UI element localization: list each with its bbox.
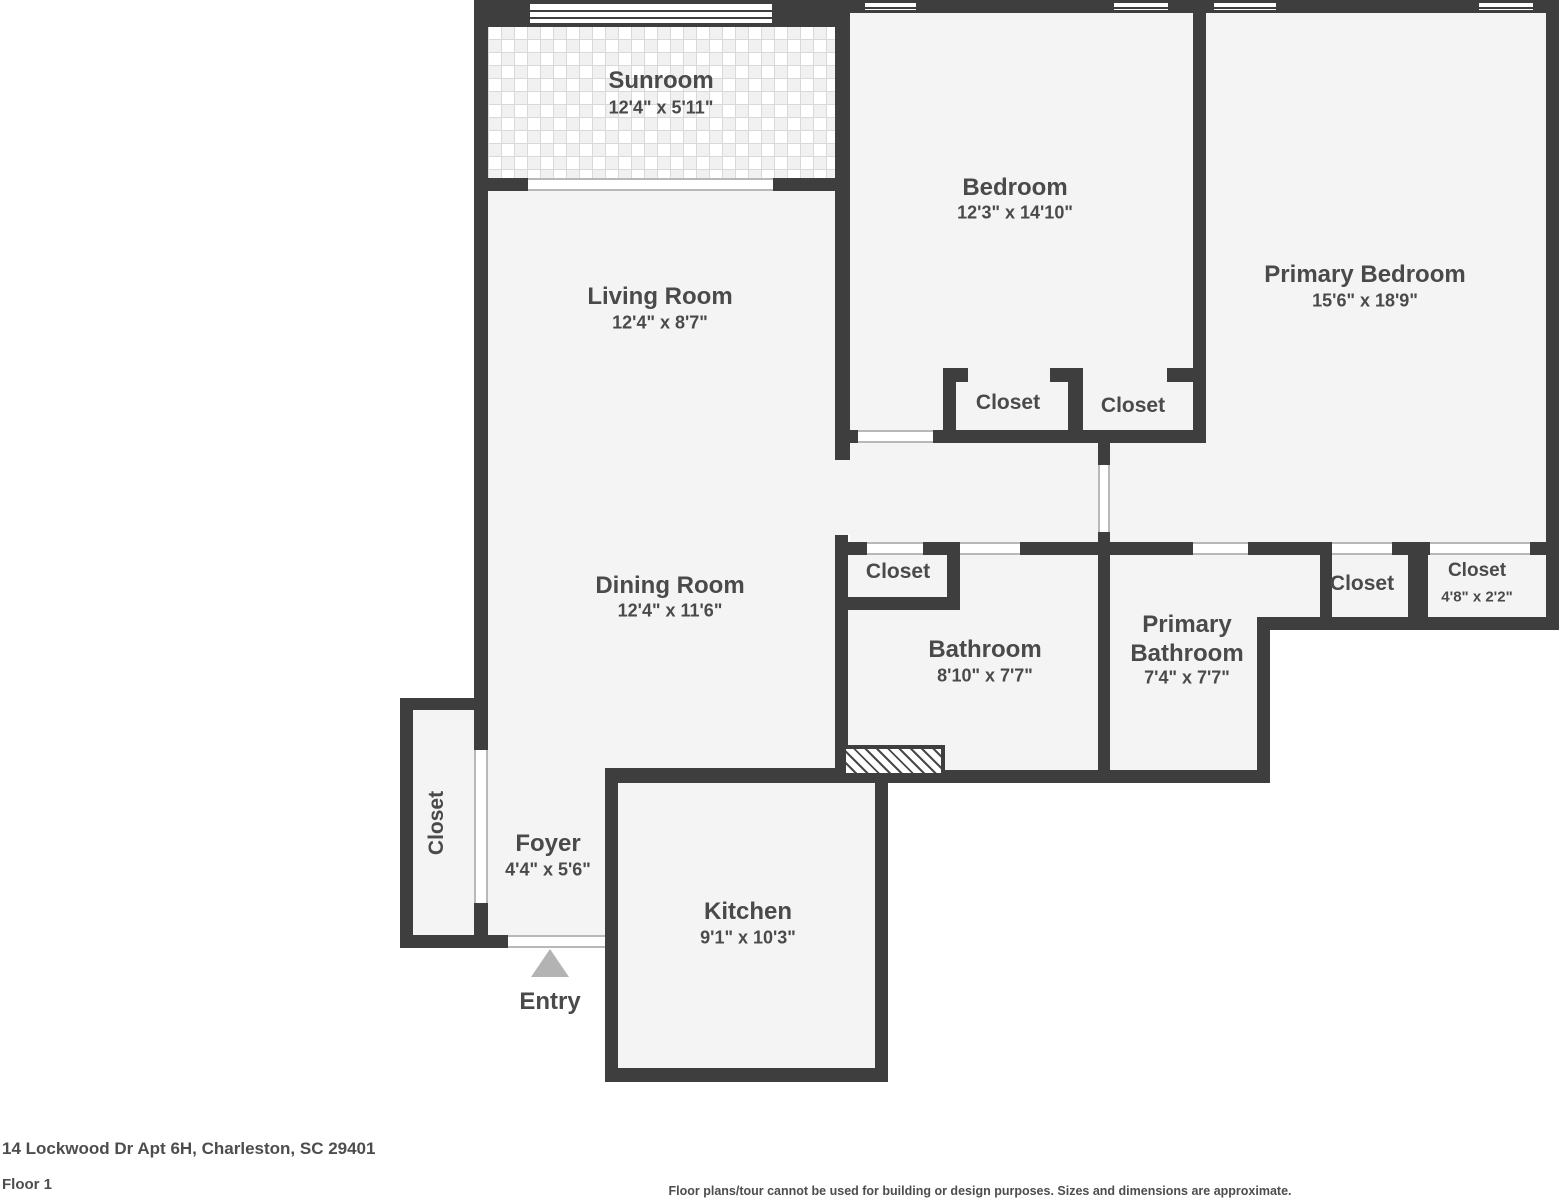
closet-label-bedroom-right: Closet — [1101, 394, 1165, 418]
room-name-bathroom: Bathroom — [928, 636, 1041, 664]
hatched-area — [842, 745, 945, 777]
wall — [400, 698, 413, 948]
closet-label-hall: Closet — [866, 560, 930, 584]
hall-passage-floor — [835, 460, 850, 535]
wall — [835, 597, 960, 610]
window-symbol — [1112, 1, 1170, 12]
entry-door-opening — [508, 935, 605, 948]
foyer-closet-door-opening — [474, 750, 488, 903]
wall — [1098, 443, 1110, 465]
room-name-primary-bathroom: Primary Bathroom — [1102, 610, 1272, 668]
primary-bedroom-strip-floor — [1110, 443, 1546, 542]
room-name-bedroom: Bedroom — [962, 174, 1067, 202]
disclaimer-text: Floor plans/tour cannot be used for buil… — [668, 1184, 1291, 1198]
primary-closet-right-door-opening — [1430, 542, 1530, 555]
room-dims-living-room: 12'4" x 8'7" — [612, 313, 708, 334]
bedroom-door-opening — [858, 430, 933, 443]
floor-label: Floor 1 — [2, 1176, 52, 1193]
closet-label-primary-left: Closet — [1330, 572, 1394, 596]
room-name-primary-bedroom: Primary Bedroom — [1264, 261, 1465, 289]
floor-plan: Sunroom 12'4" x 5'11" Living Room 12'4" … — [0, 0, 1559, 1198]
sunroom-opening — [528, 178, 773, 191]
window-symbol — [863, 1, 918, 12]
closet-label-foyer: Closet — [425, 791, 449, 855]
wall — [1546, 0, 1559, 630]
entry-label: Entry — [519, 988, 580, 1016]
room-name-living-room: Living Room — [587, 283, 732, 311]
room-dims-sunroom: 12'4" x 5'11" — [609, 98, 714, 119]
room-dims-foyer: 4'4" x 5'6" — [505, 860, 591, 881]
wall — [605, 768, 618, 1082]
wall — [943, 368, 956, 443]
closet-label-primary-right: Closet — [1448, 560, 1506, 582]
window-symbol — [1477, 1, 1535, 12]
primary-bathroom-door-opening — [1193, 542, 1248, 555]
room-dims-primary-bathroom: 7'4" x 7'7" — [1144, 668, 1230, 689]
closet-label-bedroom-left: Closet — [976, 391, 1040, 415]
room-name-sunroom: Sunroom — [608, 67, 713, 95]
primary-closet-left-door-opening — [1332, 542, 1392, 555]
closet-dims-primary-right: 4'8" x 2'2" — [1441, 589, 1512, 606]
room-name-dining-room: Dining Room — [595, 572, 744, 600]
room-dims-dining-room: 12'4" x 11'6" — [618, 601, 723, 622]
wall — [835, 535, 848, 770]
address-text: 14 Lockwood Dr Apt 6H, Charleston, SC 29… — [2, 1139, 375, 1159]
room-dims-primary-bedroom: 15'6" x 18'9" — [1312, 291, 1418, 312]
window-symbol — [1212, 1, 1278, 12]
wall — [400, 935, 508, 948]
hall-closet-door-opening — [867, 542, 923, 555]
wall — [1408, 542, 1428, 630]
bathroom-door-opening — [960, 542, 1020, 555]
entry-arrow-icon — [531, 949, 569, 977]
hallway-floor — [850, 443, 1098, 542]
wall — [875, 768, 888, 1082]
wall — [605, 1068, 888, 1082]
window-symbol — [528, 2, 774, 25]
wall — [474, 903, 488, 948]
room-name-foyer: Foyer — [515, 830, 580, 858]
room-dims-kitchen: 9'1" x 10'3" — [700, 928, 796, 949]
wall — [1193, 0, 1206, 443]
wall — [1068, 368, 1083, 443]
wall — [835, 0, 850, 460]
primary-bedroom-floor — [1206, 13, 1546, 443]
room-name-kitchen: Kitchen — [704, 898, 792, 926]
wall — [947, 542, 960, 610]
wall — [474, 0, 488, 750]
room-dims-bathroom: 8'10" x 7'7" — [937, 666, 1033, 687]
living-dining-floor — [488, 191, 835, 768]
primary-bedroom-door-opening — [1098, 465, 1110, 532]
room-dims-bedroom: 12'3" x 14'10" — [957, 203, 1073, 224]
